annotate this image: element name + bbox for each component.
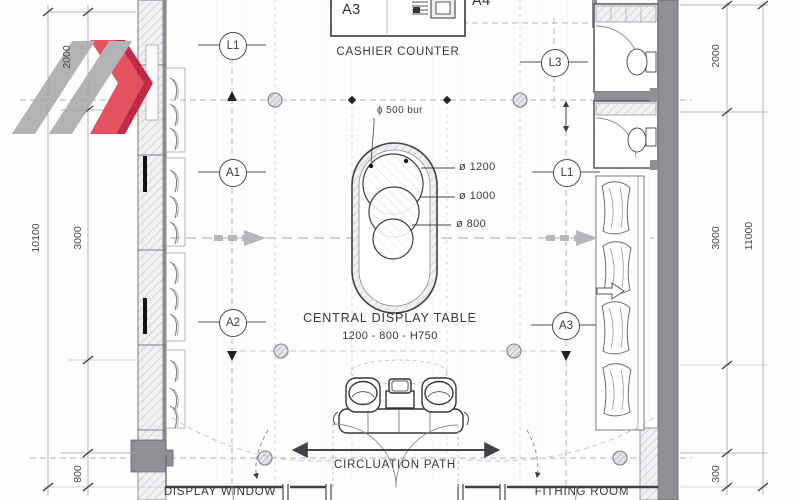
grid-bubble-A1: A1 (219, 159, 247, 187)
dim-right-outer: 11000 (743, 222, 755, 250)
diameter-1200-label: ø 1200 (459, 161, 496, 173)
dim-left-middle: 3000 (72, 226, 84, 249)
armchair-right (422, 378, 456, 412)
side-table (386, 379, 414, 408)
grid-bubble-A2: A2 (219, 309, 247, 337)
dim-right-bottom: 300 (710, 465, 722, 483)
brand-logo-watermark (26, 36, 160, 140)
grid-bubble-L1-left: L1 (219, 32, 247, 60)
central-table-size: 1200 - 800 - H750 (295, 330, 485, 342)
dim-left-bottom: 800 (72, 465, 84, 483)
grid-bubble-L1-right: L1 (553, 159, 581, 187)
fitting-room-label: FITHING ROOM (512, 486, 652, 498)
grid-bubble-A3: A3 (552, 312, 580, 340)
diameter-800-label: ø 800 (456, 218, 486, 230)
table-note-500: ϕ 500 bur (377, 105, 423, 116)
right-garment-rack (596, 176, 644, 430)
counter-tag-a3: A3 (342, 2, 361, 18)
wc-rooms (594, 4, 658, 168)
floor-plan-page: L1 A1 A2 L3 L1 A3 A3 A4 CASHIER COUNTER … (0, 0, 800, 500)
grid-bubble-L3: L3 (541, 49, 569, 77)
circulation-path-label: CIRCLUATION PATH (305, 459, 485, 471)
dim-right-middle: 3000 (710, 226, 722, 249)
central-table-title: CENTRAL DISPLAY TABLE (295, 311, 485, 325)
cashier-counter-label: CASHIER COUNTER (318, 46, 478, 58)
diameter-1000-label: ø 1000 (459, 190, 496, 202)
armchair-left (346, 378, 380, 412)
dim-left-outer: 10100 (30, 223, 42, 252)
display-window-label: DISPLAY WINDOW (150, 486, 290, 498)
dim-left-top: 2000 (61, 45, 73, 68)
toilet-icon (627, 49, 656, 75)
counter-tag-a4: A4 (472, 0, 491, 9)
dim-right-top: 2000 (710, 44, 722, 67)
